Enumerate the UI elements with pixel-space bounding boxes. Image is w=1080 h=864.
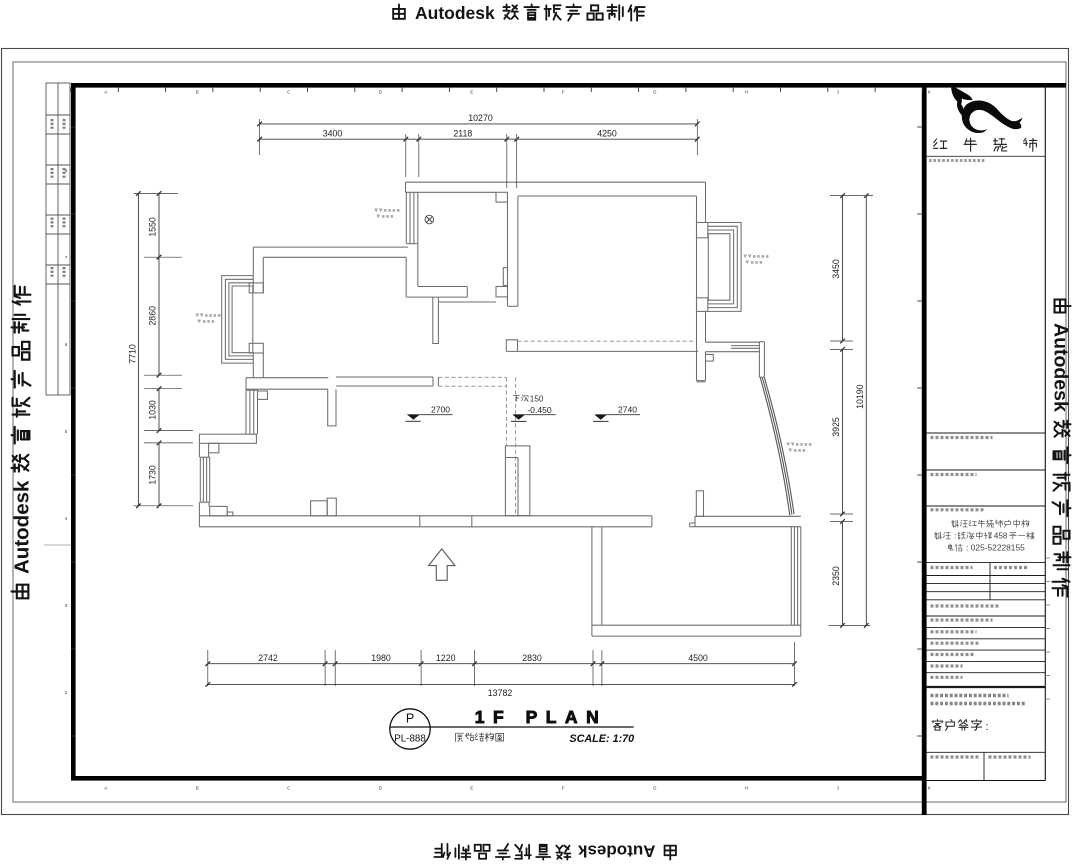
svg-text:H: H bbox=[745, 786, 748, 791]
svg-text:1980: 1980 bbox=[371, 653, 391, 663]
svg-text:6: 6 bbox=[65, 342, 68, 347]
svg-text:3: 3 bbox=[65, 603, 68, 608]
svg-text:F: F bbox=[562, 786, 565, 791]
svg-text:: 025-52228155: : 025-52228155 bbox=[966, 543, 1025, 553]
svg-text:3925: 3925 bbox=[831, 417, 841, 437]
svg-text:4500: 4500 bbox=[688, 653, 708, 663]
svg-text:1F PLAN: 1F PLAN bbox=[475, 707, 607, 727]
svg-text:P: P bbox=[406, 712, 414, 726]
svg-text:PL-888: PL-888 bbox=[394, 734, 426, 745]
svg-text:K: K bbox=[928, 786, 931, 791]
svg-text:2: 2 bbox=[65, 690, 68, 695]
svg-text:Autodesk: Autodesk bbox=[415, 3, 495, 23]
svg-text:J: J bbox=[837, 90, 839, 95]
svg-text:2740: 2740 bbox=[618, 405, 637, 415]
svg-text:G: G bbox=[653, 786, 657, 791]
svg-text:Autodesk: Autodesk bbox=[1049, 323, 1071, 412]
svg-text:1030: 1030 bbox=[148, 400, 158, 420]
svg-text:D: D bbox=[379, 90, 383, 95]
svg-text:458: 458 bbox=[994, 532, 1008, 541]
svg-text:2860: 2860 bbox=[148, 306, 158, 326]
svg-text:2742: 2742 bbox=[258, 653, 278, 663]
svg-text:SCALE: 1:70: SCALE: 1:70 bbox=[569, 733, 634, 745]
svg-text:2350: 2350 bbox=[831, 566, 841, 586]
svg-text:G: G bbox=[653, 90, 657, 95]
svg-text:Autodesk: Autodesk bbox=[11, 480, 34, 574]
svg-text:A: A bbox=[104, 90, 107, 95]
svg-text::: : bbox=[986, 721, 989, 733]
svg-text:Autodesk: Autodesk bbox=[578, 841, 656, 860]
svg-text:150: 150 bbox=[530, 395, 544, 404]
svg-text:7710: 7710 bbox=[127, 344, 137, 364]
svg-text:H: H bbox=[745, 90, 748, 95]
svg-text:2830: 2830 bbox=[522, 653, 542, 663]
svg-text:F: F bbox=[562, 90, 565, 95]
svg-text:7: 7 bbox=[65, 255, 68, 260]
svg-text:K: K bbox=[928, 90, 931, 95]
svg-text:J: J bbox=[837, 786, 839, 791]
svg-text:E: E bbox=[470, 786, 473, 791]
svg-text:4: 4 bbox=[65, 516, 68, 521]
svg-text:-0.450: -0.450 bbox=[527, 405, 552, 415]
svg-text:3400: 3400 bbox=[323, 128, 343, 138]
svg-text:B: B bbox=[196, 786, 199, 791]
svg-text:1220: 1220 bbox=[436, 653, 456, 663]
svg-text:1550: 1550 bbox=[148, 217, 158, 237]
svg-text:C: C bbox=[287, 90, 291, 95]
svg-text:10190: 10190 bbox=[855, 384, 865, 409]
svg-text:A: A bbox=[104, 786, 107, 791]
svg-text:2118: 2118 bbox=[453, 128, 472, 138]
svg-text:E: E bbox=[470, 90, 473, 95]
svg-text:10270: 10270 bbox=[468, 113, 493, 123]
svg-text::: : bbox=[954, 532, 956, 541]
svg-text:4250: 4250 bbox=[597, 128, 617, 138]
svg-text:2700: 2700 bbox=[431, 405, 450, 415]
svg-text:B: B bbox=[196, 90, 199, 95]
svg-text:5: 5 bbox=[65, 429, 68, 434]
svg-text:D: D bbox=[379, 786, 383, 791]
svg-text:C: C bbox=[287, 786, 291, 791]
svg-text:1730: 1730 bbox=[148, 465, 158, 485]
svg-text:13782: 13782 bbox=[488, 688, 513, 698]
svg-text:3450: 3450 bbox=[831, 259, 841, 279]
